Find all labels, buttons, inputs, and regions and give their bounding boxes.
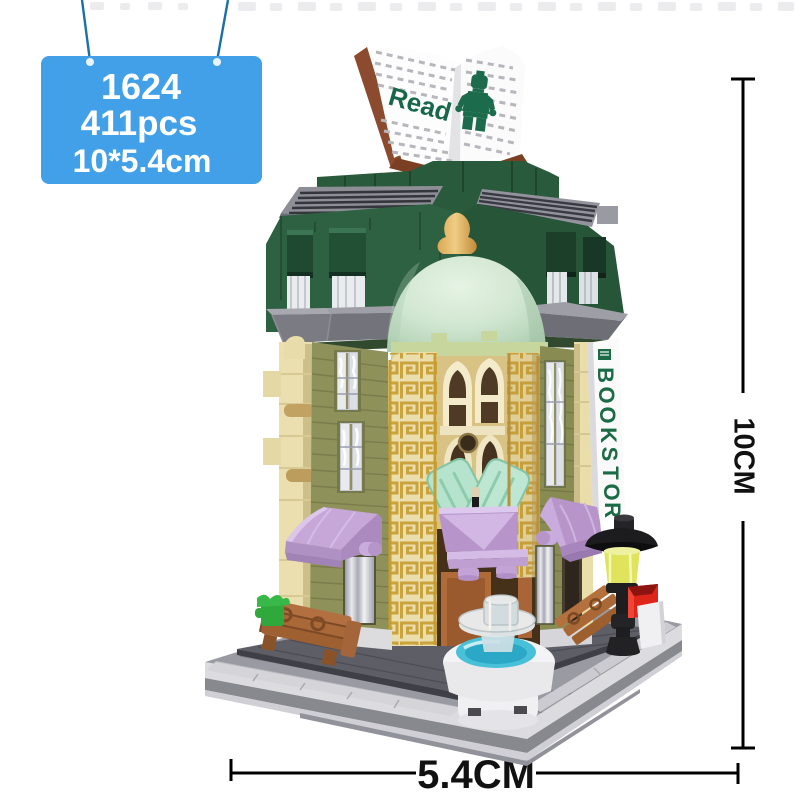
svg-text:1624: 1624: [101, 66, 181, 107]
svg-text:O: O: [599, 483, 624, 500]
svg-text:B: B: [593, 367, 618, 383]
svg-text:T: T: [598, 466, 623, 480]
svg-text:O: O: [594, 386, 619, 403]
svg-text:S: S: [597, 447, 622, 462]
svg-text:10*5.4cm: 10*5.4cm: [73, 143, 212, 179]
svg-text:O: O: [595, 406, 620, 423]
svg-text:411pcs: 411pcs: [81, 104, 198, 143]
svg-text:K: K: [596, 427, 621, 443]
svg-text:10CM: 10CM: [727, 417, 759, 494]
